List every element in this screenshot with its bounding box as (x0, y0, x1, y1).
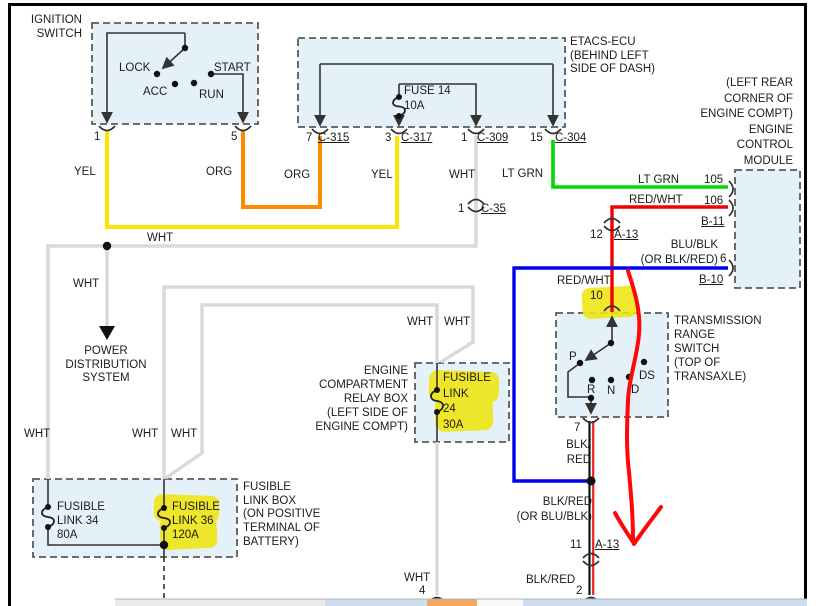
fusible-link-box-title: FUSIBLE LINK BOX (ON POSITIVE TERMINAL O… (243, 481, 320, 550)
etacs-ecu-title: ETACS-ECU (BEHIND LEFT SIDE OF DASH) (570, 36, 655, 77)
wire-label-yel-left: YEL (74, 166, 96, 180)
connector-c317: C-317 (401, 132, 432, 146)
connector-b11: B-11 (701, 216, 724, 230)
power-distribution-label: POWER DISTRIBUTION SYSTEM (58, 345, 154, 386)
wire-label-wht-bottom: WHT (404, 572, 430, 586)
c35-pin: 1 (458, 203, 464, 217)
wire-label-org-right: ORG (284, 169, 310, 183)
transmission-range-switch-title: TRANSMISSION RANGE SWITCH (TOP OF TRANSA… (674, 314, 762, 384)
connector-c35: C-35 (481, 203, 506, 217)
connector-b10: B-10 (699, 274, 723, 288)
trs-position-n: N (607, 385, 615, 399)
wire-label-lt-grn-left: LT GRN (502, 168, 543, 182)
a13-lower-pin: 11 (570, 539, 582, 553)
ignition-pin-5: 5 (231, 131, 237, 145)
yel-wire (107, 131, 397, 227)
fusible-link-34-label: FUSIBLE LINK 34 80A (57, 500, 105, 542)
ecm-pin-6: 6 (720, 253, 726, 267)
wire-label-wht-relay-left: WHT (407, 316, 433, 330)
wire-label-wht-branch: WHT (73, 278, 99, 292)
wire-label-wht-fl-mid: WHT (132, 428, 158, 442)
ignition-position-start: START (214, 62, 251, 76)
bottom-wht-pin: 4 (419, 585, 425, 599)
wire-label-org-left: ORG (206, 166, 232, 180)
ignition-position-acc: ACC (143, 86, 167, 100)
connector-c304: C-304 (555, 132, 586, 146)
connector-a13-upper: A-13 (614, 229, 638, 243)
etacs-pin-7: 7 (306, 132, 312, 146)
wire-label-wht-top: WHT (449, 169, 475, 183)
etacs-pin-15: 15 (530, 132, 543, 146)
trs-position-p: P (569, 351, 577, 365)
trs-position-r: R (587, 384, 595, 398)
ignition-position-lock: LOCK (119, 62, 150, 76)
ecm-pin-106: 106 (704, 195, 723, 209)
wire-label-red-wht-upper: RED/WHT (629, 194, 683, 208)
wiring-diagram: IGNITION SWITCH ETACS-ECU (BEHIND LEFT S… (0, 0, 820, 606)
trs-pin-7: 7 (574, 422, 580, 436)
connector-c315: C-315 (318, 132, 349, 146)
ignition-position-run: RUN (199, 89, 224, 103)
trs-pin-10: 10 (590, 290, 603, 304)
bottom-blkred-pin: 2 (576, 585, 582, 599)
wire-label-wht-fl-left: WHT (24, 428, 50, 442)
relay-box-title: ENGINE COMPARTMENT RELAY BOX (LEFT SIDE … (315, 364, 408, 434)
connector-a13-lower: A-13 (595, 539, 619, 553)
engine-control-module-box (735, 170, 800, 288)
trs-position-ds: DS (639, 370, 655, 384)
bottom-cutoff-strip (115, 599, 807, 606)
wire-label-blk-red-upper: BLK/ RED (566, 438, 591, 468)
wire-label-wht-fl-right: WHT (171, 428, 197, 442)
fuse-14-label: FUSE 14 10A (404, 84, 451, 114)
wire-label-blu-blk: BLU/BLK (OR BLK/RED) (641, 238, 718, 268)
wire-label-blk-red-lower: BLK/RED (526, 574, 575, 588)
wire-label-wht-bus: WHT (147, 232, 173, 246)
ignition-pin-1: 1 (94, 131, 100, 145)
etacs-pin-1: 1 (461, 132, 467, 146)
etacs-pin-3: 3 (385, 132, 391, 146)
wire-label-blk-red-mid: BLK/RED (OR BLU/BLK) (517, 495, 592, 525)
engine-control-module-title: (LEFT REAR CORNER OF ENGINE COMPT) ENGIN… (700, 76, 793, 170)
wire-label-wht-relay-right: WHT (444, 316, 470, 330)
a13-upper-pin: 12 (590, 229, 603, 243)
wire-label-red-wht-lower: RED/WHT (557, 275, 611, 289)
connector-c309: C-309 (477, 132, 508, 146)
fusible-link-36-label: FUSIBLE LINK 36 120A (172, 500, 220, 542)
ecm-pin-105: 105 (704, 174, 723, 188)
wire-label-lt-grn-right: LT GRN (638, 174, 679, 188)
power-distribution-arrow (99, 326, 115, 340)
trs-position-d: D (631, 384, 639, 398)
fusible-link-24-label: FUSIBLE LINK 24 30A (443, 371, 491, 434)
wire-label-yel-right: YEL (371, 169, 393, 183)
ignition-switch-title: IGNITION SWITCH (31, 14, 82, 41)
